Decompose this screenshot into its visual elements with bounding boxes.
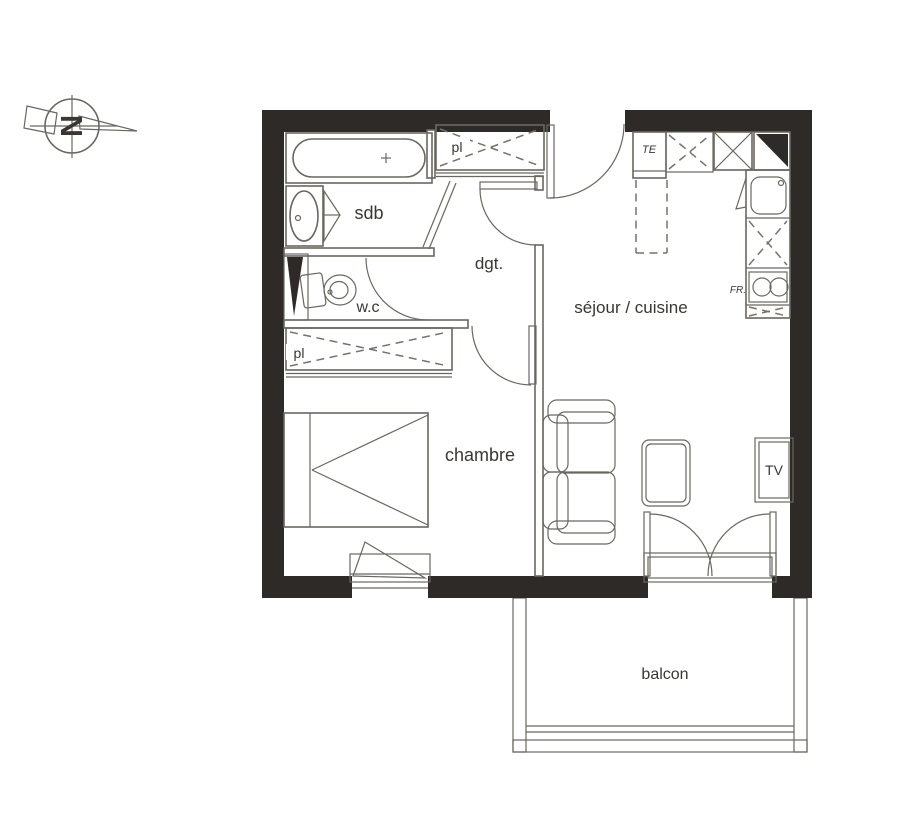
closet-label: pl — [452, 139, 463, 155]
stove-label: FR. — [730, 285, 746, 296]
wall-sdb-wc-divider — [284, 248, 434, 256]
wall-bottom-1 — [262, 576, 352, 598]
room-label-hallway: dgt. — [475, 254, 503, 273]
compass-north-letter: N — [54, 115, 89, 137]
wall-top-left — [262, 110, 550, 132]
wall-hall-living-upper — [535, 176, 543, 190]
wall-bedroom-top — [284, 320, 468, 328]
room-label-bedroom: chambre — [445, 445, 515, 465]
floor-plan-canvas: N sdb w.c pl — [0, 0, 900, 834]
window-gap — [352, 576, 428, 598]
wall-bedroom-living — [535, 245, 543, 576]
wall-sdb-right — [427, 130, 435, 178]
wall-right — [790, 110, 812, 598]
room-label-living-kitchen: séjour / cuisine — [574, 298, 687, 317]
french-door-gap — [648, 576, 772, 598]
room-label-balcony: balcon — [641, 666, 688, 683]
tv-label: TV — [765, 462, 784, 478]
closet-label: pl — [294, 345, 305, 361]
room-label-toilet: w.c — [355, 299, 379, 316]
room-label-bathroom: sdb — [354, 203, 383, 223]
page: N sdb w.c pl — [0, 0, 900, 834]
wall-left — [262, 110, 284, 598]
wall-top-right — [625, 110, 812, 132]
wall-bottom-2 — [428, 576, 648, 598]
electrical-panel-label: TE — [642, 144, 657, 156]
